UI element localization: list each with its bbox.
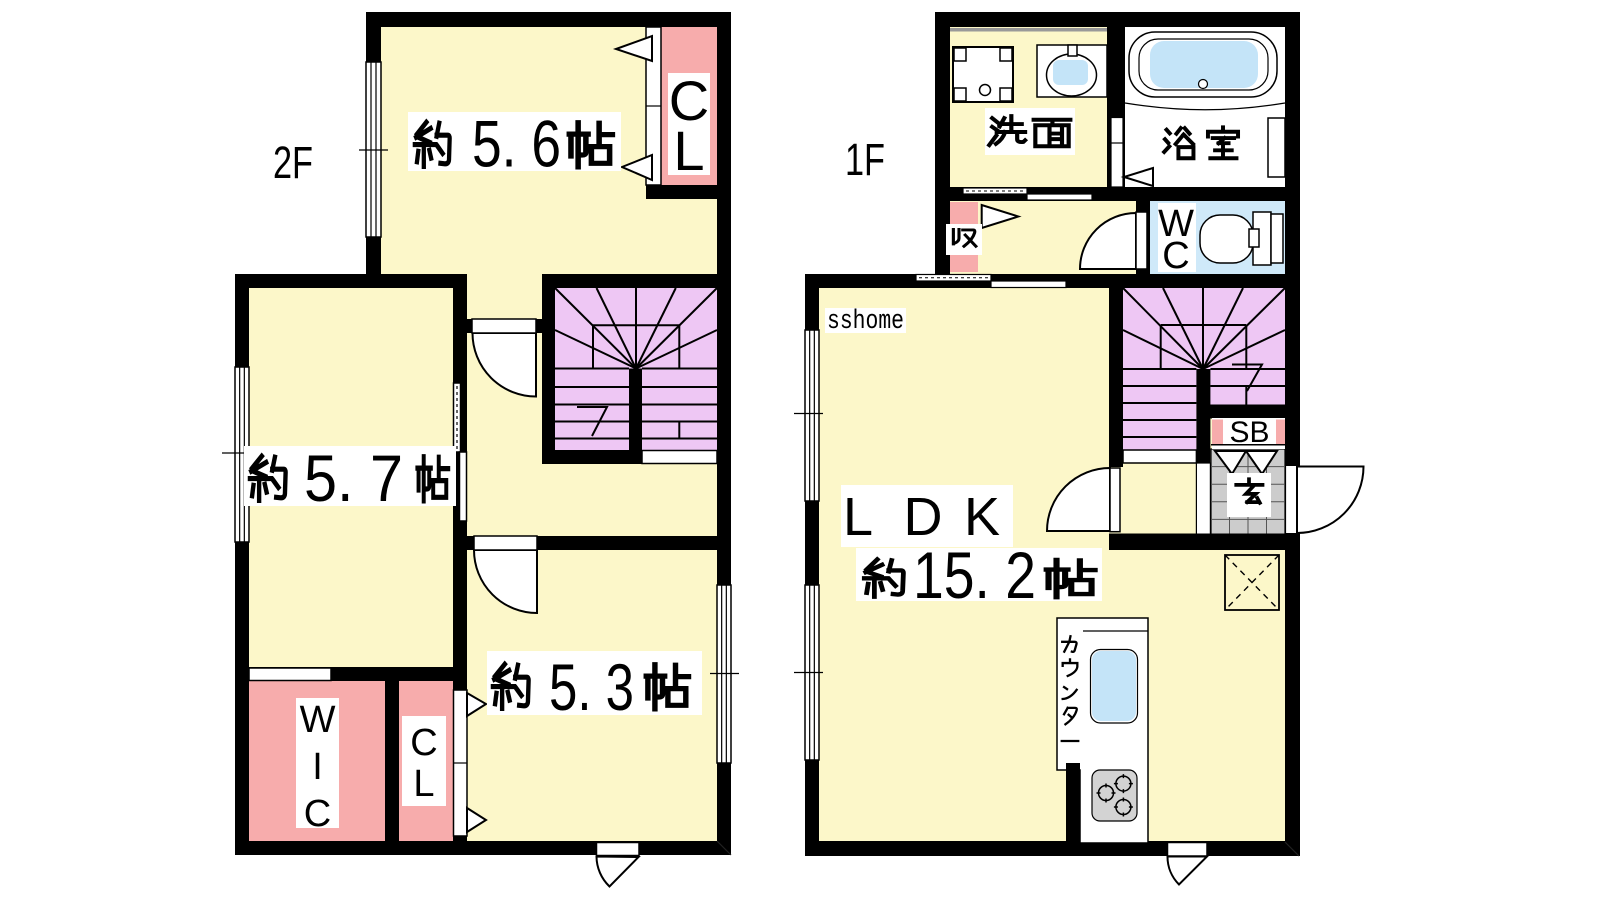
svg-text:5. 7: 5. 7 (304, 441, 403, 515)
svg-text:C: C (1162, 235, 1189, 277)
svg-text:15. 2: 15. 2 (913, 538, 1036, 612)
svg-text:SB: SB (1230, 416, 1270, 449)
svg-text:5. 3: 5. 3 (549, 650, 634, 724)
svg-text:sshome: sshome (827, 307, 904, 337)
svg-text:L: L (843, 487, 873, 547)
svg-text:I: I (312, 746, 323, 788)
svg-text:C: C (304, 793, 331, 835)
svg-text:W: W (300, 699, 336, 741)
svg-text:L: L (673, 119, 704, 182)
svg-text:L: L (413, 763, 434, 805)
svg-text:C: C (410, 722, 437, 764)
svg-text:1F: 1F (845, 134, 885, 185)
svg-text:5. 6: 5. 6 (472, 107, 561, 181)
svg-text:2F: 2F (273, 137, 313, 188)
